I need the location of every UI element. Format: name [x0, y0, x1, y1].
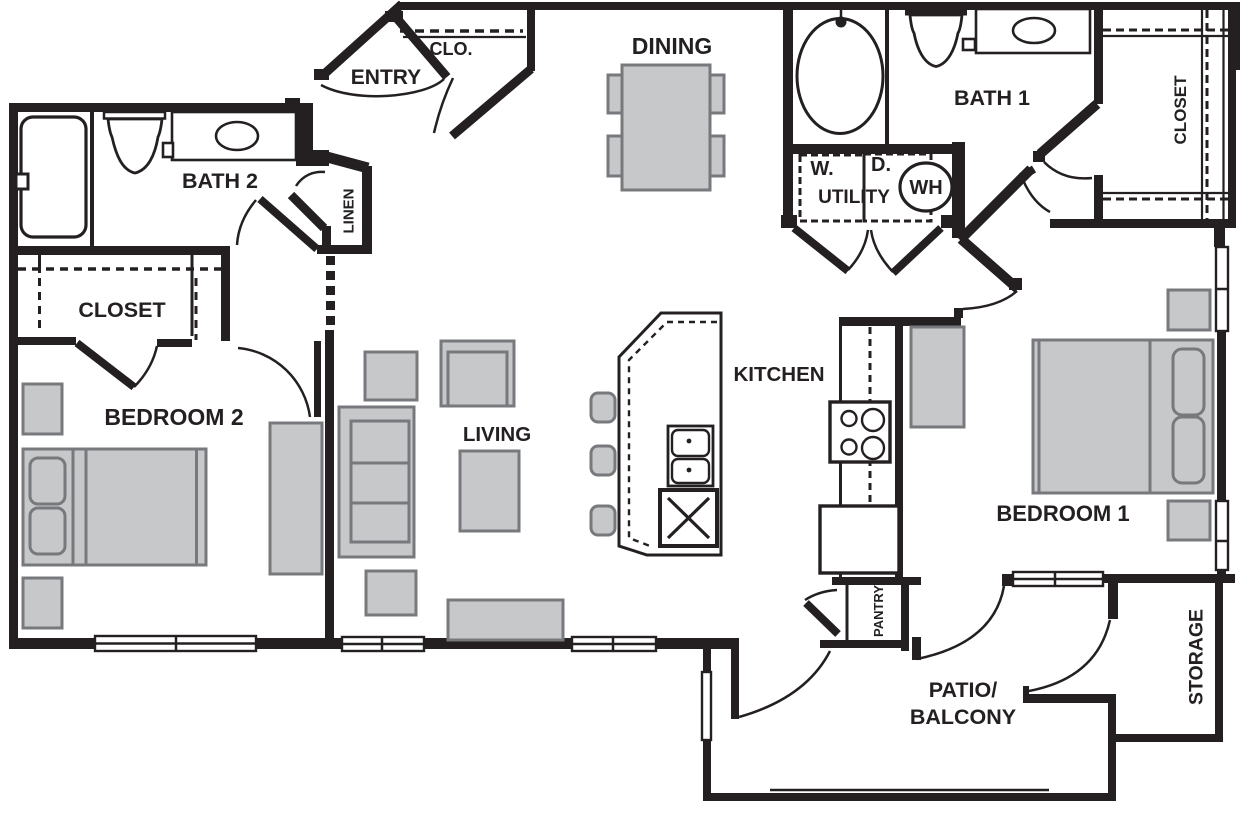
svg-text:CLOSET: CLOSET: [1171, 75, 1190, 145]
svg-text:LINEN: LINEN: [341, 189, 358, 234]
svg-text:KITCHEN: KITCHEN: [733, 363, 824, 386]
svg-text:STORAGE: STORAGE: [1186, 609, 1208, 705]
svg-text:LIVING: LIVING: [463, 423, 531, 446]
svg-text:ENTRY: ENTRY: [351, 66, 421, 89]
svg-text:BEDROOM 1: BEDROOM 1: [996, 501, 1129, 526]
svg-text:WH: WH: [909, 177, 942, 199]
svg-text:CLO.: CLO.: [430, 39, 473, 59]
svg-text:DINING: DINING: [632, 33, 713, 59]
svg-text:BATH 2: BATH 2: [182, 169, 258, 193]
svg-text:CLOSET: CLOSET: [78, 298, 165, 322]
svg-text:W.: W.: [810, 158, 833, 180]
svg-text:BATH 1: BATH 1: [954, 86, 1030, 110]
svg-text:UTILITY: UTILITY: [818, 187, 890, 208]
svg-text:D.: D.: [871, 154, 891, 176]
svg-text:BALCONY: BALCONY: [910, 705, 1016, 729]
svg-text:BEDROOM 2: BEDROOM 2: [104, 404, 243, 430]
svg-text:PANTRY: PANTRY: [871, 585, 886, 637]
svg-text:PATIO/: PATIO/: [929, 678, 998, 702]
